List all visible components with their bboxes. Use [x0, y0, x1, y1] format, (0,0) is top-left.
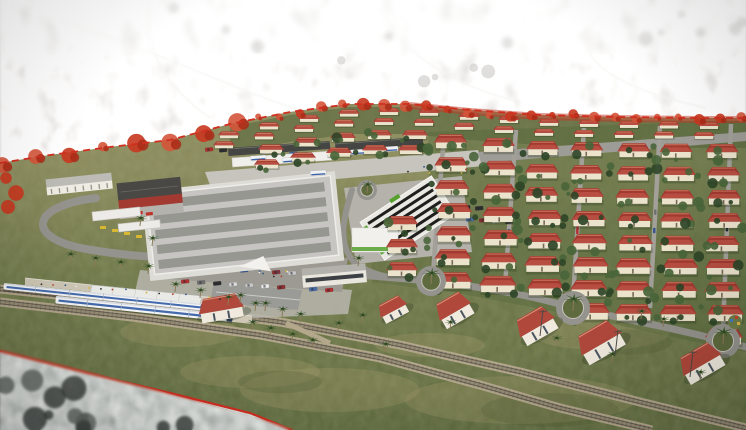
- taxi: [112, 229, 118, 232]
- house: [330, 132, 356, 143]
- house: [434, 134, 467, 151]
- car: [229, 282, 237, 287]
- house: [653, 131, 675, 139]
- house: [707, 190, 741, 208]
- house: [524, 187, 558, 204]
- house: [704, 282, 741, 301]
- house: [617, 235, 653, 253]
- house: [527, 210, 562, 228]
- house: [293, 137, 321, 148]
- house: [480, 253, 517, 273]
- house: [386, 239, 418, 256]
- car: [197, 280, 205, 285]
- house: [571, 211, 606, 229]
- taxi: [100, 226, 106, 229]
- render-scene: [0, 0, 746, 430]
- house: [569, 165, 603, 184]
- car: [309, 287, 317, 292]
- car: [475, 206, 483, 211]
- house: [364, 128, 392, 140]
- house: [435, 249, 472, 268]
- taxi: [124, 232, 130, 235]
- car: [277, 285, 285, 290]
- house: [253, 132, 275, 140]
- house: [493, 126, 515, 134]
- house: [533, 129, 555, 137]
- house: [660, 213, 695, 230]
- house: [413, 119, 435, 127]
- car: [213, 281, 221, 286]
- house: [615, 189, 649, 208]
- car: [205, 147, 213, 152]
- house: [333, 120, 355, 128]
- bus: [310, 170, 326, 176]
- house: [615, 304, 653, 326]
- house: [659, 305, 697, 325]
- house: [479, 276, 518, 298]
- car: [325, 288, 333, 293]
- house: [613, 131, 635, 139]
- aerial-development-render: [0, 0, 746, 430]
- house: [338, 110, 360, 118]
- house: [436, 226, 472, 247]
- house: [570, 141, 603, 159]
- house: [703, 236, 740, 254]
- car: [261, 284, 269, 289]
- house: [616, 166, 652, 183]
- house: [705, 259, 744, 280]
- house: [258, 122, 280, 130]
- house: [660, 144, 693, 162]
- taxi: [136, 235, 142, 238]
- car: [272, 270, 280, 275]
- car: [245, 283, 253, 288]
- house: [482, 138, 515, 154]
- house: [617, 212, 652, 230]
- roundabout: [357, 180, 377, 200]
- house: [693, 132, 715, 140]
- house: [662, 167, 696, 184]
- house: [218, 131, 240, 139]
- house: [453, 123, 475, 131]
- house: [373, 118, 395, 126]
- house: [293, 125, 315, 133]
- roundabout: [416, 266, 446, 296]
- house: [213, 141, 235, 149]
- house: [573, 130, 595, 138]
- car: [288, 271, 296, 276]
- playground: [728, 315, 742, 329]
- car: [181, 279, 189, 284]
